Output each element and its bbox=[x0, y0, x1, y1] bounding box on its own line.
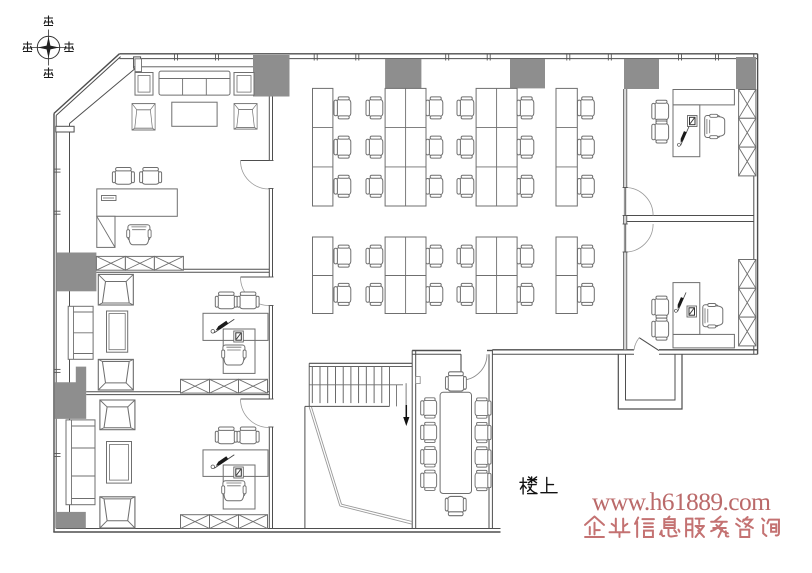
svg-text:www.h61889.com: www.h61889.com bbox=[592, 487, 771, 516]
